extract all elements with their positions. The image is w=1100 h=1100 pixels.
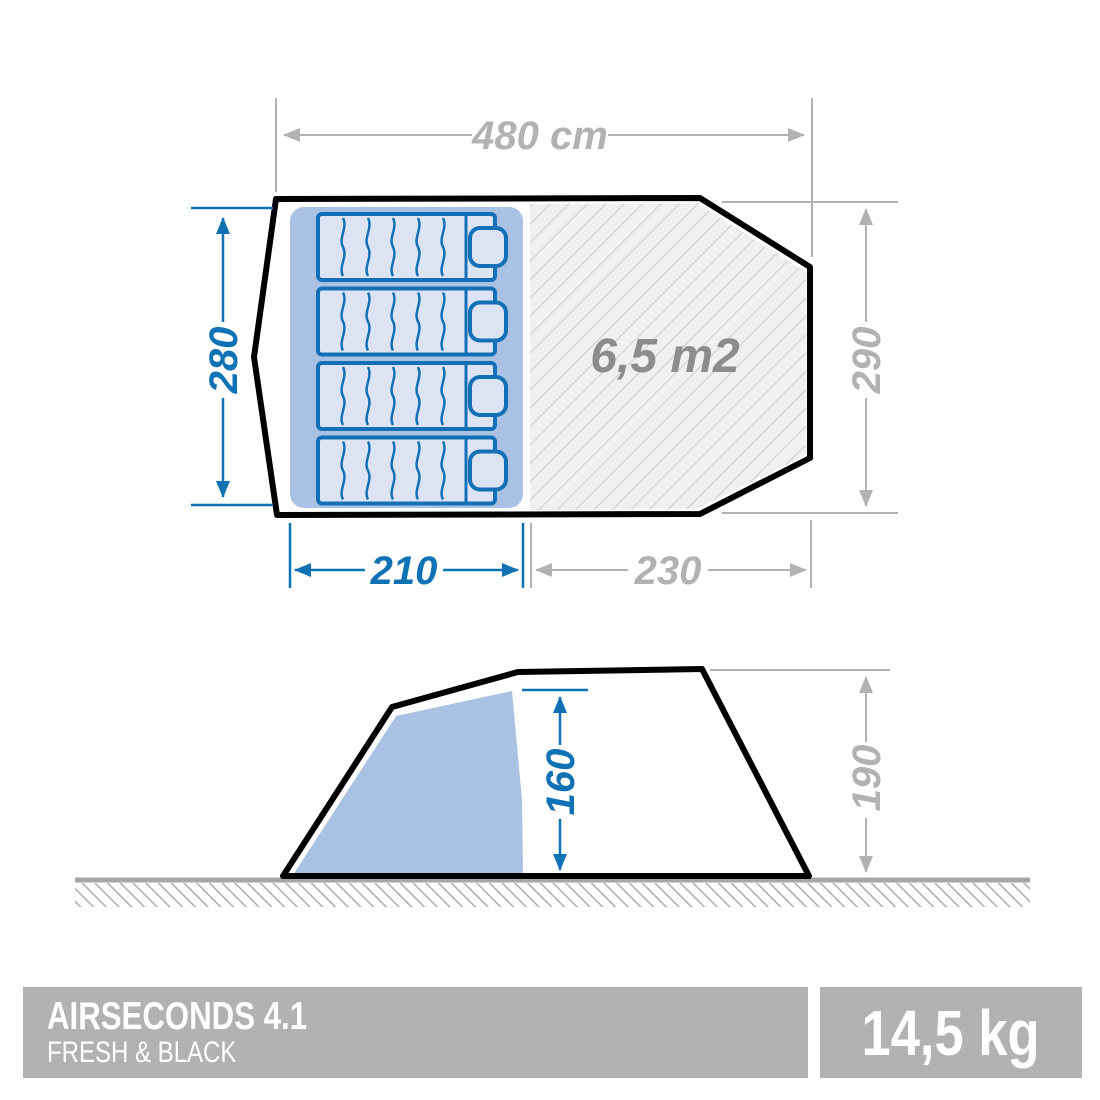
tent-dimensions-screenshot: 6,5 m2 480 cm 280: [0, 0, 1100, 1100]
inner-height-label: 160: [539, 749, 583, 816]
product-name: AIRSECONDS 4.1: [47, 997, 656, 1037]
bedroom-width-label: 210: [370, 549, 438, 593]
dimension-bedroom-width: 210: [290, 523, 523, 593]
ground-hatch: [75, 883, 1030, 907]
side-view: 160 190: [75, 669, 1030, 907]
dimensions-diagram: 6,5 m2 480 cm 280: [0, 0, 1100, 960]
weight-value: 14,5 kg: [862, 996, 1040, 1070]
outer-height-label: 190: [845, 745, 889, 812]
living-width-label: 230: [634, 549, 702, 593]
weight-banner: 14,5 kg: [820, 987, 1082, 1078]
product-banner: AIRSECONDS 4.1 FRESH & BLACK: [23, 987, 808, 1078]
product-subtitle: FRESH & BLACK: [47, 1037, 656, 1068]
total-width-label: 480 cm: [471, 114, 608, 158]
dimension-outer-height: 190: [710, 670, 890, 872]
dimension-inner-height: 160: [522, 690, 588, 870]
bedroom-depth-label: 280: [202, 327, 246, 395]
living-area-label: 6,5 m2: [590, 330, 740, 383]
tent-depth-label: 290: [845, 327, 889, 395]
side-bedroom-shape: [293, 691, 523, 875]
floor-plan: 6,5 m2 480 cm 280: [191, 98, 898, 593]
dimension-living-width: 230: [531, 520, 811, 593]
